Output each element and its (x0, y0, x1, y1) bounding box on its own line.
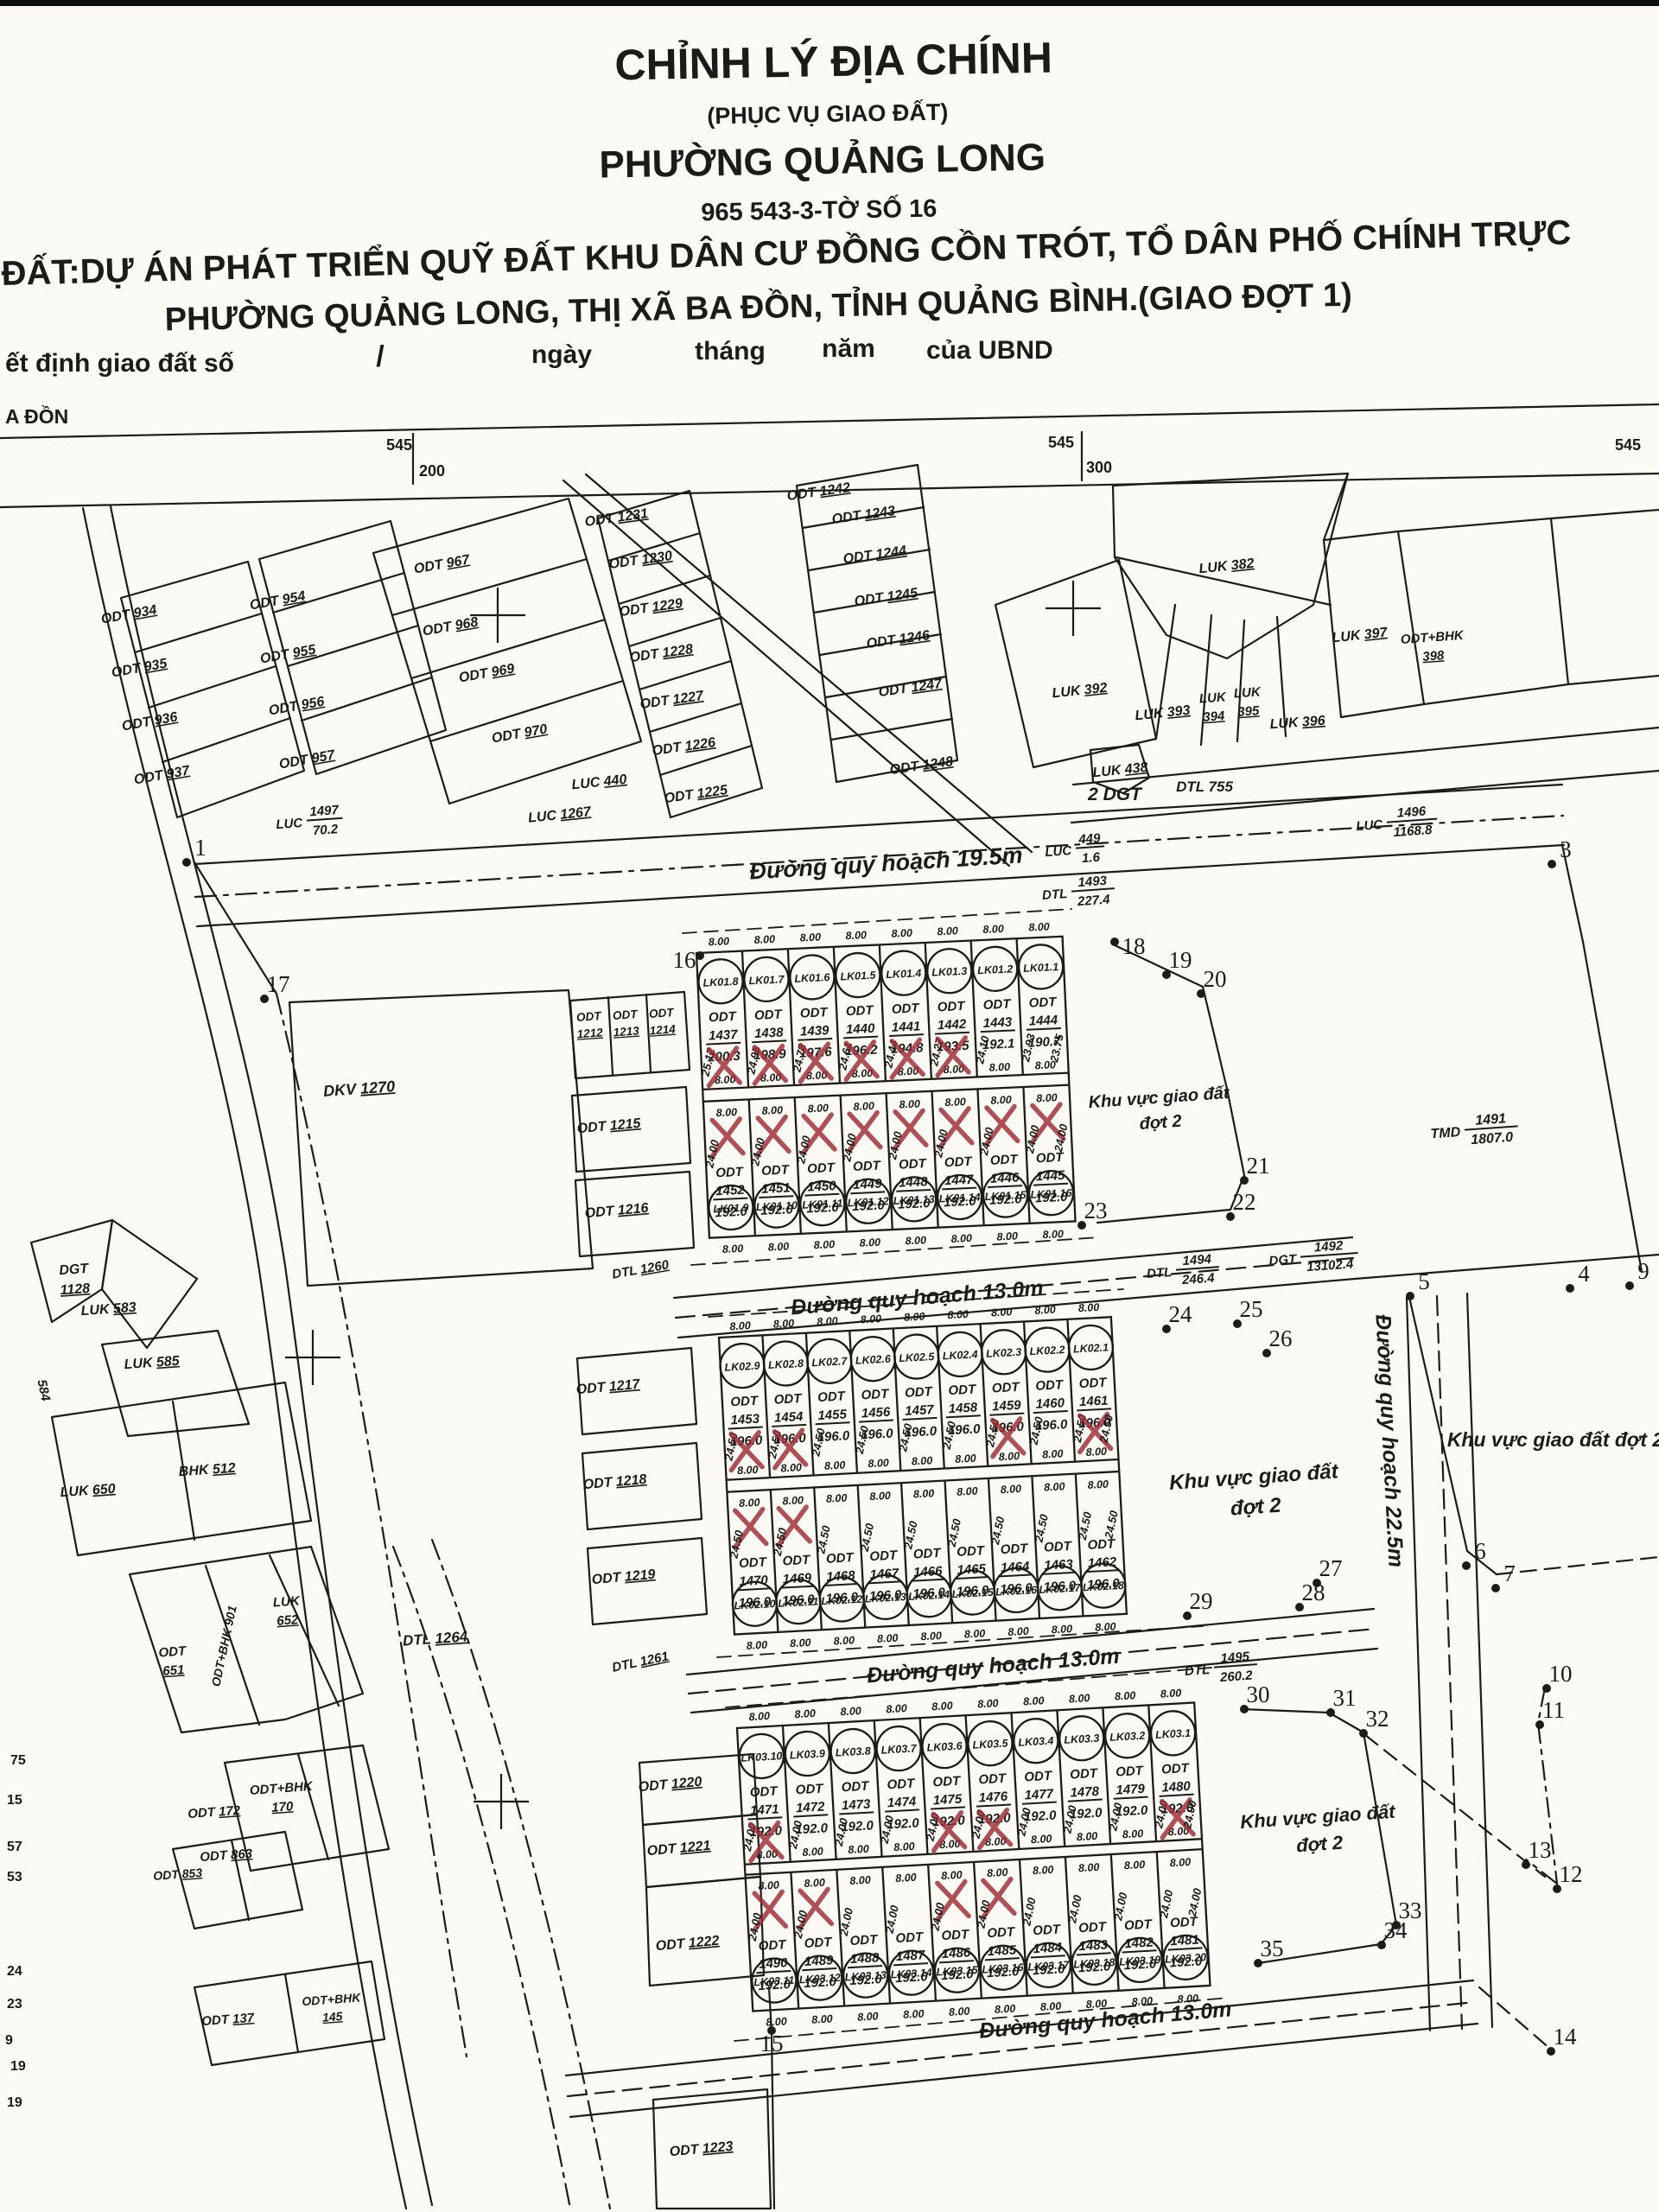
map-label: ODT (730, 1394, 760, 1410)
map-label: 8.00 (995, 2003, 1016, 2016)
lot-name: LK02.16 (995, 1584, 1039, 1599)
lot-name: LK01.13 (893, 1193, 935, 1207)
map-label-stack: LUK395 (1233, 684, 1263, 720)
map-label: DTL 755 (1176, 779, 1233, 795)
map-label-stack: ODT+BHK145 (302, 1990, 363, 2025)
map-label-stack: LUK652 (272, 1593, 302, 1629)
map-label: BHK 512 (178, 1461, 236, 1480)
map-label: ODT 1230 (608, 549, 674, 572)
lot-name: LK01.1 (1023, 961, 1059, 975)
map-label: ODT (749, 1783, 779, 1800)
map-label: 8.00 (1040, 2000, 1062, 2013)
map-label: DTL 1264 (402, 1628, 468, 1649)
boundary-point-number: 5 (1418, 1268, 1430, 1294)
lot-name: LK03.17 (1027, 1959, 1071, 1974)
boundary-point-number: 30 (1247, 1681, 1270, 1707)
map-label: ODT (1024, 1769, 1053, 1785)
map-label: 8.00 (766, 2015, 787, 2028)
lot-number: 1461 (1079, 1394, 1109, 1410)
map-label: 23 (7, 1997, 22, 2012)
map-label: LUC 1267 (527, 804, 592, 826)
map-label: 8.00 (893, 1840, 915, 1853)
map-label: ODT (782, 1553, 811, 1569)
map-label: 8.00 (1077, 1830, 1098, 1843)
map-label: 8.00 (996, 1230, 1018, 1243)
lot-number: 1478 (1070, 1784, 1100, 1801)
boundary-point-dot (1162, 970, 1171, 979)
map-label: ODT (709, 1009, 738, 1026)
map-label: DGT (59, 1262, 90, 1278)
boundary-point-dot (1553, 1885, 1561, 1893)
map-label: ODT 1242 (786, 480, 852, 504)
parcel-block: 8.008.008.008.00LK02.9ODT1453196.024.50O… (715, 1300, 1128, 1652)
map-label: 652 (276, 1612, 300, 1629)
lot-name: LK01.15 (984, 1189, 1027, 1203)
map-label: 8.00 (758, 1879, 779, 1892)
map-label: LUK 382 (1198, 556, 1255, 577)
map-label: LUK (272, 1593, 301, 1610)
map-label: ODT (804, 1935, 833, 1951)
lot-name: LK03.19 (1119, 1954, 1161, 1968)
lot-name: LK01.14 (938, 1191, 981, 1205)
map-label: DGT (1268, 1252, 1299, 1268)
boundary-point-number: 10 (1549, 1661, 1573, 1687)
map-label: ODT (991, 1380, 1020, 1396)
map-label: ODT+BHK (302, 1990, 362, 2008)
map-label: 8.00 (1044, 1480, 1065, 1493)
road-label: Đường quy hoạch 13.0m (866, 1644, 1120, 1688)
lot-name: LK01.9 (713, 1202, 749, 1216)
map-label: 8.00 (1042, 1447, 1064, 1460)
map-label: ODT 934 (100, 603, 158, 627)
boundary-point-number: 14 (1554, 2024, 1578, 2050)
project-line-2: PHƯỜNG QUẢNG LONG, THỊ XÃ BA ĐỒN, TỈNH Q… (164, 276, 1352, 339)
map-label: 8.00 (1095, 1620, 1116, 1633)
boundary-point-number: 34 (1384, 1917, 1408, 1943)
decision-day: ngày (531, 340, 592, 369)
map-label: LUK 396 (1269, 714, 1325, 732)
lot-number: 1456 (861, 1405, 891, 1421)
map-label: ODT (576, 1009, 603, 1024)
map-label: 8.00 (964, 1627, 986, 1640)
boundary-point-dot (1110, 938, 1119, 946)
lot-name: LK02.14 (908, 1588, 950, 1602)
boundary-point-number: 18 (1122, 933, 1146, 959)
map-label: ODT (758, 1937, 787, 1954)
map-label: 545 (1048, 434, 1074, 451)
map-label: 8.00 (947, 1308, 969, 1321)
lot-name: LK01.11 (802, 1198, 843, 1211)
map-label: 8.00 (708, 935, 729, 948)
lot-number: 1443 (982, 1014, 1013, 1031)
map-label: 8.00 (903, 2007, 925, 2020)
map-label: 8.00 (826, 1491, 848, 1504)
map-label-fraction: LUC4491.6 (1044, 830, 1106, 868)
parcel-block: 8.008.008.008.00LK03.10ODT1471192.024.00… (733, 1686, 1211, 2029)
map-label: ODT (613, 1007, 639, 1022)
lot-number: 1441 (892, 1019, 921, 1034)
map-label: 1168.8 (1393, 823, 1433, 840)
map-label: 8.00 (840, 1705, 861, 1718)
lot-number: 1454 (774, 1409, 804, 1426)
map-label: ODT 937 (133, 763, 192, 787)
map-label: 1491 (1475, 1111, 1507, 1128)
map-label: 8.00 (912, 1454, 933, 1467)
map-label: 8.00 (1078, 1301, 1100, 1314)
lot-name: LK03.6 (926, 1739, 963, 1753)
lot-dim: 24.00 (1185, 1886, 1205, 1918)
map-label: 8.00 (845, 929, 867, 942)
map-label: ODT 1245 (854, 586, 920, 609)
map-label: 8.00 (807, 1102, 829, 1115)
map-label: ODT (739, 1554, 768, 1571)
lot-name: LK02.10 (734, 1598, 776, 1611)
map-label: 8.00 (904, 1310, 925, 1323)
map-label: 8.00 (722, 1243, 744, 1255)
map-label: DTL (1146, 1265, 1172, 1281)
map-label: DTL 1261 (611, 1649, 671, 1675)
map-label: 8.00 (780, 1461, 802, 1474)
lot-name: LK01.2 (977, 963, 1014, 976)
boundary-point-number: 4 (1578, 1261, 1590, 1287)
map-label: 1214 (649, 1022, 676, 1037)
map-label: 8.00 (799, 931, 821, 944)
map-label: 8.00 (957, 1485, 978, 1498)
map-label: 300 (1086, 459, 1112, 476)
boundary-point-dot (1377, 1941, 1386, 1949)
boundary-point-dot (182, 858, 191, 867)
map-label: ODT 1227 (639, 689, 706, 712)
map-label: ODT 1223 (669, 2139, 734, 2159)
map-label: ODT (891, 1001, 920, 1017)
map-label: 8.00 (868, 1457, 889, 1470)
boundary-point-number: 31 (1333, 1685, 1357, 1711)
map-label: ODT (158, 1643, 188, 1660)
boundary-point-number: 1 (194, 835, 207, 861)
lot-name: LK03.8 (835, 1745, 871, 1758)
map-label: 246.4 (1180, 1271, 1215, 1288)
map-label: 8.00 (1124, 1859, 1146, 1872)
map-label: 8.00 (944, 1096, 966, 1109)
map-label: ODT (895, 1929, 925, 1946)
boundary-point-dot (1522, 1860, 1530, 1869)
map-label: 8.00 (1078, 1861, 1100, 1874)
map-label: 651 (162, 1662, 185, 1679)
lot-name: LK01.12 (848, 1195, 890, 1209)
map-label: ODT (944, 1154, 974, 1171)
lot-name: LK02.5 (899, 1351, 936, 1364)
map-label: 8.00 (987, 1866, 1008, 1879)
map-label: 1495 (1220, 1649, 1250, 1666)
boundary-point-number: 23 (1084, 1198, 1108, 1224)
decision-ubnd: của UBND (926, 336, 1053, 365)
map-label: ODT (1078, 1919, 1108, 1935)
lot-number: 1442 (938, 1017, 968, 1033)
lot-name: LK03.7 (880, 1742, 918, 1756)
map-label: ODT (800, 1005, 829, 1021)
map-label: ODT 955 (259, 642, 318, 666)
parcel-dkv1270 (289, 990, 593, 1286)
lot-name: LK03.3 (1064, 1732, 1100, 1746)
boundary-point-dot (1359, 1729, 1368, 1738)
map-label: ODT+BHK (1400, 628, 1465, 647)
lot-number: 1473 (842, 1796, 872, 1813)
lot-name: LK02.9 (724, 1360, 760, 1374)
boundary-point-number: 26 (1269, 1325, 1293, 1351)
map-label: 8.00 (1034, 1304, 1056, 1317)
map-label: ODT (1070, 1766, 1099, 1783)
lot-name: LK02.8 (768, 1357, 804, 1371)
map-label: ODT 1221 (646, 1839, 711, 1859)
map-label: DTL 1260 (611, 1257, 671, 1281)
map-label: 9 (5, 2033, 13, 2048)
map-label: 19 (7, 2095, 22, 2110)
lot-name: LK03.18 (1073, 1956, 1116, 1971)
map-label: 1493 (1077, 874, 1108, 890)
boundary-right-north (1562, 845, 1642, 1272)
map-label: 8.00 (1023, 1694, 1045, 1707)
boundary-point-number: 11 (1542, 1697, 1565, 1723)
lot-name: LK03.14 (890, 1967, 932, 1981)
boundary-point-number: 19 (1169, 947, 1192, 973)
map-label: 8.00 (899, 1097, 920, 1110)
map-label: 8.00 (941, 1869, 963, 1882)
map-label: 8.00 (739, 1497, 760, 1510)
map-label: LUK (1233, 684, 1262, 701)
map-label: 8.00 (920, 1630, 942, 1643)
map-label: LUK 392 (1052, 681, 1109, 702)
map-label: 1213 (613, 1024, 639, 1039)
boundary-point-dot (1262, 1349, 1271, 1357)
map-svg: 8.008.008.008.00LK01.8ODT1437200.325.12O… (0, 0, 1659, 2212)
map-label: 8.00 (802, 1846, 823, 1859)
map-label: 8.00 (782, 1494, 804, 1507)
map-label: 15 (7, 1793, 22, 1808)
map-label: ODT 1216 (584, 1201, 649, 1221)
boundary-point-number: 28 (1302, 1580, 1325, 1605)
map-label: ODT (761, 1162, 791, 1179)
lot-number: 1453 (730, 1412, 760, 1428)
ward-title: PHƯỜNG QUẢNG LONG (599, 135, 1046, 186)
map-label: 8.00 (746, 1639, 767, 1652)
map-label: LUK 650 (60, 1482, 116, 1500)
lot-number: 1439 (800, 1023, 830, 1039)
map-label-stack: ODT+BHK398 (1400, 628, 1466, 666)
map-label: 395 (1237, 703, 1261, 720)
lot-number: 1440 (846, 1021, 876, 1038)
map-label: LUC (1045, 843, 1073, 860)
lot-name: LK03.12 (799, 1972, 842, 1986)
map-label: 8.00 (813, 1238, 835, 1251)
boundary-point-number: 21 (1247, 1153, 1270, 1179)
map-label: 19 (10, 2059, 26, 2074)
map-label: 8.00 (869, 1490, 891, 1503)
parcel-luk397 (1324, 531, 1424, 717)
lot-name: LK02.12 (821, 1593, 863, 1607)
map-label: ODT (861, 1387, 890, 1403)
lot-number: 1457 (905, 1402, 935, 1419)
map-label: ODT (1116, 1764, 1145, 1780)
map-label: 8.00 (824, 1459, 846, 1472)
map-label: ODT 1244 (842, 543, 908, 567)
boundary-point-number: 9 (1637, 1258, 1649, 1284)
map-label: ODT 1247 (878, 677, 944, 700)
map-label: LUC (1356, 817, 1384, 834)
map-label: ODT 1222 (655, 1934, 720, 1954)
lot-name: LK01.7 (748, 973, 785, 987)
lot-name: LK02.18 (1083, 1580, 1125, 1593)
map-label: đợt 2 (1139, 1112, 1182, 1134)
map-label: ODT (649, 1006, 676, 1020)
map-label: ODT 1229 (619, 596, 684, 620)
decision-slash: / (376, 340, 385, 373)
map-label: ODT (990, 1152, 1020, 1168)
map-label: 8.00 (729, 1319, 751, 1332)
boundary-point-number: 16 (673, 947, 696, 973)
boundary-point-number: 25 (1240, 1296, 1263, 1322)
boundary-point-dot (1326, 1708, 1335, 1717)
map-label: ODT 853 (153, 1866, 203, 1883)
map-label: 1212 (576, 1026, 603, 1040)
map-label-stack: Khu vực giao đấtđợt 2 (1168, 1459, 1342, 1524)
map-label: ODT (887, 1777, 916, 1793)
map-label: ODT (773, 1391, 803, 1408)
map-label: 8.00 (748, 1710, 770, 1723)
map-label: ODT (1033, 1922, 1062, 1938)
lot-name: LK01.16 (1030, 1187, 1073, 1201)
map-label: ODT (795, 1781, 824, 1797)
map-label: ODT (912, 1546, 942, 1562)
map-label: 8.00 (859, 1236, 880, 1249)
map-label-stack: ODT+BHK170 (249, 1779, 315, 1817)
map-label: 8.00 (860, 1313, 881, 1325)
map-label: ODT 1226 (652, 735, 717, 759)
map-label: 8.00 (768, 1240, 790, 1253)
map-label: Khu vực giao đất đợt 2 (1447, 1428, 1659, 1451)
boundary-point-dot (1491, 1584, 1500, 1592)
map-label: 8.00 (1069, 1692, 1090, 1705)
map-label: 8.00 (1051, 1623, 1072, 1636)
map-label: ODT (715, 1165, 745, 1181)
map-label: 8.00 (794, 1707, 816, 1720)
map-label: ODT (937, 999, 966, 1015)
map-label: 1.6 (1081, 850, 1101, 866)
map-label: Khu vực giao đất (1088, 1084, 1231, 1112)
map-label: ODT 863 (200, 1847, 254, 1865)
map-label: 8.00 (790, 1637, 811, 1649)
map-label: ODT (982, 997, 1012, 1014)
map-label-stack: ODT1214 (648, 1006, 677, 1038)
boundary-point-number: 22 (1233, 1189, 1256, 1215)
lot-name: LK02.15 (951, 1586, 995, 1601)
map-label: ODT (899, 1156, 928, 1173)
map-label: ODT (754, 1007, 784, 1024)
boundary-point-dot (1233, 1319, 1242, 1328)
map-label: 1492 (1313, 1238, 1344, 1255)
map-label: 8.00 (982, 923, 1004, 936)
map-label: 8.00 (1160, 1687, 1182, 1700)
lot-name: LK03.2 (1109, 1730, 1146, 1744)
parcel-luk583 (102, 1220, 197, 1348)
boundary-point-dot (260, 995, 269, 1003)
map-label: ODT 1219 (591, 1567, 656, 1587)
lot-name: LK03.5 (972, 1737, 1009, 1751)
boundary-point-dot (1183, 1611, 1192, 1620)
map-label: ODT+BHK (249, 1779, 314, 1798)
map-label-fraction: DTL1494246.4 (1146, 1251, 1221, 1290)
map-label: ODT 969 (458, 662, 516, 686)
parcel-odtbhk398 (1398, 510, 1659, 704)
map-label: ODT (807, 1160, 836, 1177)
map-label: ODT 172 (188, 1803, 242, 1821)
lot-number: 1458 (948, 1400, 978, 1416)
page-subtitle: (PHỤC VỤ GIAO ĐẤT) (707, 99, 948, 130)
map-label: 8.00 (1028, 920, 1050, 933)
lot-name: LK01.10 (756, 1199, 798, 1213)
map-label: ODT 967 (413, 552, 472, 576)
map-label: 8.00 (753, 933, 775, 946)
lot-name: LK03.16 (982, 1961, 1025, 1976)
boundary-point-dot (1254, 1959, 1262, 1967)
sheet-number: 965 543-3-TỜ SỐ 16 (701, 194, 938, 227)
map-label: 24 (7, 1964, 22, 1979)
map-label: 2 DGT (1087, 785, 1143, 804)
map-label: ODT 1243 (831, 504, 897, 527)
survey-cross-icon (470, 588, 525, 643)
map-label: 75 (10, 1753, 26, 1768)
page-title: CHỈNH LÝ ĐỊA CHÍNH (614, 34, 1052, 90)
map-label: ODT (1000, 1541, 1029, 1558)
lot-name: LK01.3 (931, 965, 968, 979)
map-label: đợt 2 (1230, 1494, 1282, 1521)
lot-name: LK01.8 (702, 976, 739, 989)
map-label: ODT 1246 (866, 628, 931, 652)
map-label: đợt 2 (1295, 1832, 1344, 1857)
boundary-point-dot (1566, 1284, 1574, 1293)
map-label: 8.00 (1042, 1228, 1064, 1241)
boundary-point-number: 27 (1319, 1555, 1343, 1581)
map-label: ODT 1225 (664, 783, 730, 806)
lot-number: 1437 (709, 1027, 739, 1044)
map-label: 584 (34, 1378, 53, 1403)
survey-cross-icon (1046, 581, 1101, 636)
map-label: 8.00 (1169, 1856, 1191, 1869)
map-label: 8.00 (1085, 1446, 1107, 1459)
parcels-651-901-652 (130, 1547, 363, 1732)
map-label: DTL (1041, 887, 1067, 903)
lot-number: 1480 (1161, 1779, 1192, 1796)
lot-name: LK02.1 (1073, 1341, 1109, 1355)
map-label: 8.00 (761, 1104, 783, 1117)
map-label: 394 (1203, 709, 1226, 725)
map-label: ODT (1035, 1377, 1065, 1394)
map-label: 8.00 (1000, 1483, 1021, 1496)
map-label: ODT (817, 1389, 847, 1405)
map-label: ODT (905, 1384, 934, 1401)
boundary-point-dot (696, 951, 704, 960)
map-label: ODT 968 (422, 615, 480, 639)
parcels-967-970 (373, 499, 641, 804)
map-label: 8.00 (737, 1464, 759, 1477)
road-label: Đường quy hoạch 22.5m (1370, 1314, 1408, 1568)
map-label: 57 (7, 1840, 22, 1854)
map-label: 8.00 (1036, 1091, 1058, 1104)
map-label: DKV 1270 (322, 1077, 395, 1100)
lot-name: LK02.7 (811, 1355, 849, 1369)
map-label: ODT (957, 1543, 986, 1560)
map-label: ODT (853, 1159, 882, 1175)
map-label: 8.00 (848, 1843, 869, 1856)
